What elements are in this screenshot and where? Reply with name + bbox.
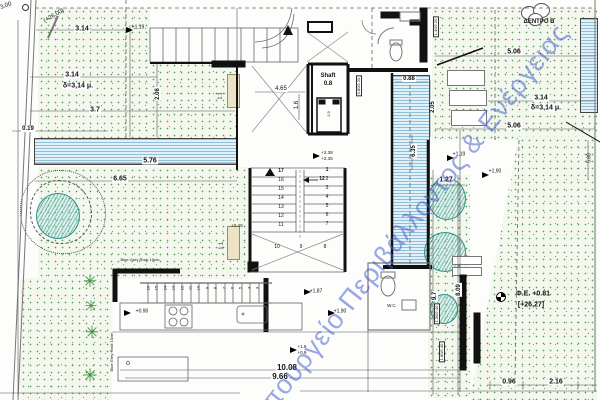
dim-label: 4.65: [274, 86, 288, 92]
plant-icon: ✳: [82, 366, 97, 387]
dim-label: 5.06: [506, 49, 522, 56]
dim-label: 1.40/2.20: [433, 17, 439, 38]
dim-label: 1.80/2.40: [439, 342, 445, 363]
stair-step-number: 11: [278, 222, 283, 228]
stair-step-number: 15: [154, 286, 159, 290]
stair-step-number: 11: [188, 286, 193, 290]
dim-label: 1.1: [219, 93, 224, 100]
dim-label: 9.7: [432, 291, 438, 301]
dim-label: +1,90: [489, 170, 502, 175]
level-marker-icon: [304, 289, 311, 295]
dim-label: +2.35: [321, 157, 332, 162]
stair-step-number: 3: [326, 185, 329, 191]
dim-label: 2.05: [430, 100, 436, 114]
stair-step-number: 2: [326, 176, 329, 182]
floor-plan: 3,00(+26,00)3.14+1,193.14δ=3,14 μ.3.70.1…: [0, 0, 600, 400]
dim-label: 1.9: [327, 111, 331, 117]
stair-step-number: 2: [263, 287, 268, 289]
plant-icon: ✳: [85, 297, 98, 315]
stair-step-number: 5: [238, 287, 243, 289]
stair-step-number: 3: [255, 287, 260, 289]
benchmark-icon: [496, 292, 506, 302]
dim-label: 0.88: [402, 76, 416, 82]
stair-step-number: 16: [146, 286, 151, 290]
dim-label: 1.6: [294, 101, 300, 109]
stair-step-number: 14: [278, 195, 284, 201]
dim-label: 8.09: [456, 283, 462, 297]
dim-label: +1,19: [132, 26, 145, 31]
dim-label: +0.90: [136, 310, 149, 315]
dim-label: 5.08: [588, 153, 593, 163]
dim-label: 5.76: [142, 158, 158, 165]
level-marker-icon: [126, 27, 133, 33]
dim-label: Shaft: [321, 73, 336, 79]
dim-label: 2.16: [548, 379, 564, 386]
dim-label: 0.80/2.20: [356, 76, 362, 97]
stair-step-number: 16: [278, 177, 284, 183]
dim-label: 1.1: [220, 243, 225, 250]
stair-step-number: 6: [326, 212, 329, 218]
stair-step-number: 4: [246, 287, 251, 289]
stair-step-number: 7: [326, 221, 329, 227]
stair-step-number: 12: [179, 286, 184, 290]
dim-label: 2.06: [155, 87, 161, 101]
plant-icon: ✳: [85, 323, 99, 343]
dim-label: 0.96: [501, 379, 517, 386]
dim-label: 1.06/2.40: [434, 304, 440, 325]
stair-step-number: 13: [278, 204, 284, 210]
dim-label: 6.65: [112, 176, 128, 183]
dim-label: 0.8: [324, 81, 332, 87]
dim-label: 3,00: [0, 1, 13, 11]
dim-label: +2.38: [321, 151, 332, 156]
plant-icon: ✳: [83, 272, 97, 292]
stair-step-number: 15: [278, 186, 284, 192]
dim-label: 5.06: [506, 123, 522, 130]
dim-label: 6.35: [411, 144, 417, 158]
stair-step-number: 1: [326, 167, 329, 173]
dim-label: +0.45: [231, 224, 242, 229]
dim-label: W.C.: [387, 304, 397, 309]
dim-label: 3.14: [64, 72, 80, 79]
dim-label: +1.87: [310, 290, 323, 295]
stair-step-number: 8: [324, 244, 327, 250]
stair-step-number: 10: [274, 244, 280, 250]
stair-step-number: 9: [300, 244, 303, 250]
dim-label: Blue Grey Rock 10cm: [110, 333, 114, 372]
stair-step-number: 13: [171, 286, 176, 290]
stair-step-number: 8: [213, 287, 218, 289]
stair-step-number: 4: [326, 194, 329, 200]
survey-point-icon: [22, 4, 29, 11]
stair-step-number: 14: [162, 286, 167, 290]
dim-label: (+26,00): [43, 8, 65, 24]
level-marker-icon: [482, 172, 489, 178]
stair-step-number: 10: [196, 286, 201, 290]
dim-label: [+26,27]: [518, 302, 544, 309]
dim-label: 0.19: [21, 126, 35, 132]
stair-step-number: 5: [326, 203, 329, 209]
dim-label: δ=3,14 μ.: [62, 83, 94, 90]
dim-label: 3.14: [533, 95, 549, 102]
dim-label: Φ.Ε. +0.81: [516, 291, 550, 298]
stair-step-number: 12: [278, 213, 284, 219]
stair-flight-annotation: 12: [319, 176, 325, 182]
stair-step-number: 6: [230, 287, 235, 289]
level-marker-icon: [313, 153, 320, 159]
dim-label: 3.7: [89, 107, 101, 114]
stair-step-number: 17: [278, 168, 284, 174]
dim-label: Blue Grey Rock 10cm: [121, 258, 160, 262]
stair-step-number: 9: [204, 287, 209, 289]
dim-label: 3.14: [74, 26, 90, 33]
level-marker-icon: [124, 310, 131, 316]
dim-label: δ=3,14 μ.: [530, 105, 562, 112]
stair-step-number: 7: [221, 287, 226, 289]
